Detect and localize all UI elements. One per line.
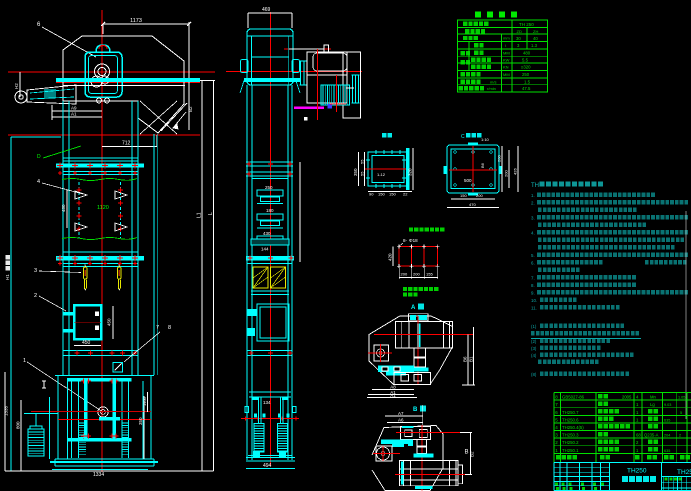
svg-text:TH250.2: TH250.2 <box>562 440 579 445</box>
svg-text:1335: 1335 <box>4 405 9 416</box>
svg-text:D: D <box>37 154 41 160</box>
svg-text:GB5027-86: GB5027-86 <box>562 395 585 400</box>
svg-text:A1: A1 <box>71 112 77 117</box>
svg-text:180: 180 <box>266 208 274 213</box>
svg-text:TH250.4(5): TH250.4(5) <box>562 425 584 430</box>
svg-text:(8): (8) <box>531 372 537 377</box>
svg-text:B: B <box>413 407 418 413</box>
svg-text:469: 469 <box>262 7 271 13</box>
svg-text:B1: B1 <box>469 356 474 362</box>
svg-text:3: 3 <box>34 268 37 274</box>
svg-text:A: A <box>411 305 416 311</box>
svg-text:5: 5 <box>680 411 682 415</box>
svg-text:1: 1 <box>23 358 26 364</box>
svg-text:MM: MM <box>503 72 510 77</box>
svg-text:8: 8 <box>168 325 171 331</box>
svg-text:4.: 4. <box>531 230 535 235</box>
svg-text:mm: mm <box>503 36 510 41</box>
svg-text:A9: A9 <box>71 106 77 111</box>
svg-text:2: 2 <box>679 434 681 438</box>
svg-text:m/s: m/s <box>490 79 496 84</box>
svg-text:1.05: 1.05 <box>678 396 685 400</box>
svg-text:1173: 1173 <box>130 18 142 24</box>
svg-text:150: 150 <box>378 192 385 197</box>
svg-text:l: l <box>505 43 506 48</box>
svg-text:Mn: Mn <box>650 395 656 400</box>
svg-text:A6: A6 <box>398 418 404 423</box>
svg-text:134: 134 <box>263 400 271 405</box>
svg-text:200: 200 <box>497 155 502 162</box>
svg-text:A1: A1 <box>390 393 396 398</box>
svg-text:635: 635 <box>664 418 670 422</box>
svg-text:B2: B2 <box>470 451 475 457</box>
svg-text:200: 200 <box>413 272 420 277</box>
svg-text:TH250.3: TH250.3 <box>562 433 579 438</box>
svg-text:1400: 1400 <box>142 396 147 406</box>
svg-text:r/min: r/min <box>487 86 496 91</box>
svg-text:8.: 8. <box>531 283 535 288</box>
svg-text:ZD: ZD <box>517 29 522 34</box>
svg-text:55: 55 <box>360 171 365 176</box>
svg-text:430: 430 <box>263 231 271 236</box>
svg-text:1334: 1334 <box>93 472 104 478</box>
svg-text:250: 250 <box>522 72 530 77</box>
svg-text:1.: 1. <box>531 193 535 198</box>
svg-text:30: 30 <box>516 36 521 41</box>
svg-text:1.5: 1.5 <box>524 80 531 85</box>
svg-text:5.5: 5.5 <box>522 58 529 63</box>
svg-text:320: 320 <box>408 168 413 176</box>
svg-text:(4): (4) <box>531 353 537 358</box>
svg-text:C: C <box>461 134 465 140</box>
svg-text:TH250: TH250 <box>627 468 647 475</box>
svg-text:MM: MM <box>503 50 510 55</box>
svg-text:B: B <box>465 450 469 456</box>
svg-text:(1): (1) <box>531 324 537 329</box>
svg-text:7.: 7. <box>531 275 535 280</box>
svg-text:68: 68 <box>636 433 641 438</box>
svg-text:494: 494 <box>263 463 272 469</box>
svg-text:L: L <box>208 212 214 215</box>
svg-text:200: 200 <box>476 193 483 198</box>
svg-text:7: 7 <box>156 325 159 331</box>
svg-text:TH 250: TH 250 <box>519 22 534 27</box>
svg-text:200: 200 <box>401 272 408 277</box>
svg-text:(3): (3) <box>531 346 537 351</box>
svg-text:KW: KW <box>503 57 510 62</box>
svg-text:712: 712 <box>122 141 131 147</box>
svg-text:350: 350 <box>138 417 143 425</box>
svg-text:B6: B6 <box>463 356 468 362</box>
svg-text:3.: 3. <box>531 215 535 220</box>
svg-text:2005: 2005 <box>622 395 632 400</box>
svg-text:2.: 2. <box>531 200 535 205</box>
svg-text:Lg: Lg <box>650 402 655 407</box>
svg-text:H1: H1 <box>5 274 10 280</box>
svg-text:1.3: 1.3 <box>531 43 538 48</box>
svg-text:1120: 1120 <box>97 205 109 211</box>
svg-text:22: 22 <box>403 192 408 197</box>
svg-text:250: 250 <box>265 185 273 190</box>
svg-text:1:10: 1:10 <box>481 137 490 142</box>
svg-text:9.: 9. <box>531 290 535 295</box>
svg-text:800: 800 <box>16 421 21 429</box>
svg-text:TH250.1: TH250.1 <box>562 448 579 453</box>
svg-text:150: 150 <box>460 193 467 198</box>
svg-text:8-: 8- <box>403 238 408 243</box>
svg-text:4: 4 <box>37 179 40 185</box>
svg-text:1-12: 1-12 <box>377 172 386 177</box>
svg-text:47.5: 47.5 <box>522 86 531 91</box>
svg-text:480: 480 <box>61 204 66 212</box>
svg-text:Φ18: Φ18 <box>409 238 418 243</box>
svg-text:40: 40 <box>533 36 538 41</box>
svg-text:Q235-A: Q235-A <box>644 433 659 438</box>
svg-text:11.: 11. <box>531 305 537 310</box>
svg-text:6.: 6. <box>531 260 535 265</box>
svg-text:200: 200 <box>504 170 509 177</box>
svg-text:635: 635 <box>664 449 670 453</box>
svg-text:KN: KN <box>503 64 509 69</box>
svg-text:90: 90 <box>369 192 374 197</box>
svg-text:155: 155 <box>426 272 433 277</box>
svg-text:350: 350 <box>353 168 358 176</box>
svg-text:204: 204 <box>664 434 670 438</box>
svg-text:(2): (2) <box>531 339 537 344</box>
svg-text:2: 2 <box>34 293 37 299</box>
svg-text:480: 480 <box>523 51 531 56</box>
svg-text:55: 55 <box>360 159 365 164</box>
svg-text:TH250.6: TH250.6 <box>562 417 579 422</box>
svg-text:450: 450 <box>82 340 91 346</box>
svg-text:144: 144 <box>261 247 269 252</box>
svg-text:L1: L1 <box>197 212 203 218</box>
svg-text:150: 150 <box>389 192 396 197</box>
svg-text:5.: 5. <box>531 253 535 258</box>
svg-text:B6: B6 <box>480 162 485 168</box>
svg-text:≥320: ≥320 <box>521 65 531 70</box>
svg-text:H2: H2 <box>14 83 19 89</box>
svg-text:A8: A8 <box>390 385 396 390</box>
svg-text:TH25: TH25 <box>677 469 691 476</box>
svg-text:500: 500 <box>464 178 472 183</box>
svg-text:470: 470 <box>469 202 476 207</box>
svg-text:A7: A7 <box>398 411 404 416</box>
svg-text:420: 420 <box>388 253 393 261</box>
svg-text:426: 426 <box>513 168 518 175</box>
svg-text:TH250.7: TH250.7 <box>562 410 579 415</box>
svg-text:450: 450 <box>107 318 112 326</box>
svg-text:ZH: ZH <box>533 29 538 34</box>
svg-text:10.: 10. <box>531 298 537 303</box>
svg-text:TH: TH <box>531 183 539 189</box>
svg-text:9.03: 9.03 <box>664 403 671 407</box>
svg-text:B2: B2 <box>188 106 193 112</box>
